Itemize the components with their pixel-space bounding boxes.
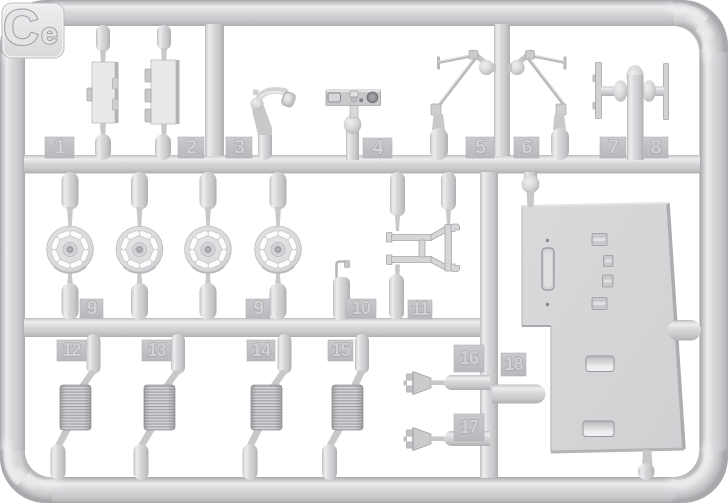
svg-text:13: 13 — [147, 340, 166, 360]
svg-text:8: 8 — [650, 137, 661, 159]
svg-text:C: C — [3, 0, 39, 56]
svg-text:9: 9 — [253, 298, 264, 320]
svg-text:3: 3 — [234, 137, 245, 159]
svg-text:15: 15 — [331, 340, 350, 360]
svg-text:18: 18 — [504, 354, 523, 374]
svg-text:9: 9 — [86, 298, 97, 320]
svg-text:10: 10 — [352, 298, 371, 318]
svg-text:5: 5 — [475, 137, 486, 159]
svg-text:14: 14 — [252, 340, 271, 360]
svg-text:16: 16 — [460, 348, 479, 368]
svg-text:17: 17 — [460, 417, 479, 437]
svg-text:e: e — [41, 18, 58, 51]
svg-text:6: 6 — [521, 137, 532, 159]
svg-text:11: 11 — [411, 299, 429, 319]
svg-text:7: 7 — [608, 137, 619, 159]
svg-text:2: 2 — [186, 137, 197, 159]
svg-text:1: 1 — [54, 137, 65, 159]
svg-text:12: 12 — [62, 340, 81, 360]
